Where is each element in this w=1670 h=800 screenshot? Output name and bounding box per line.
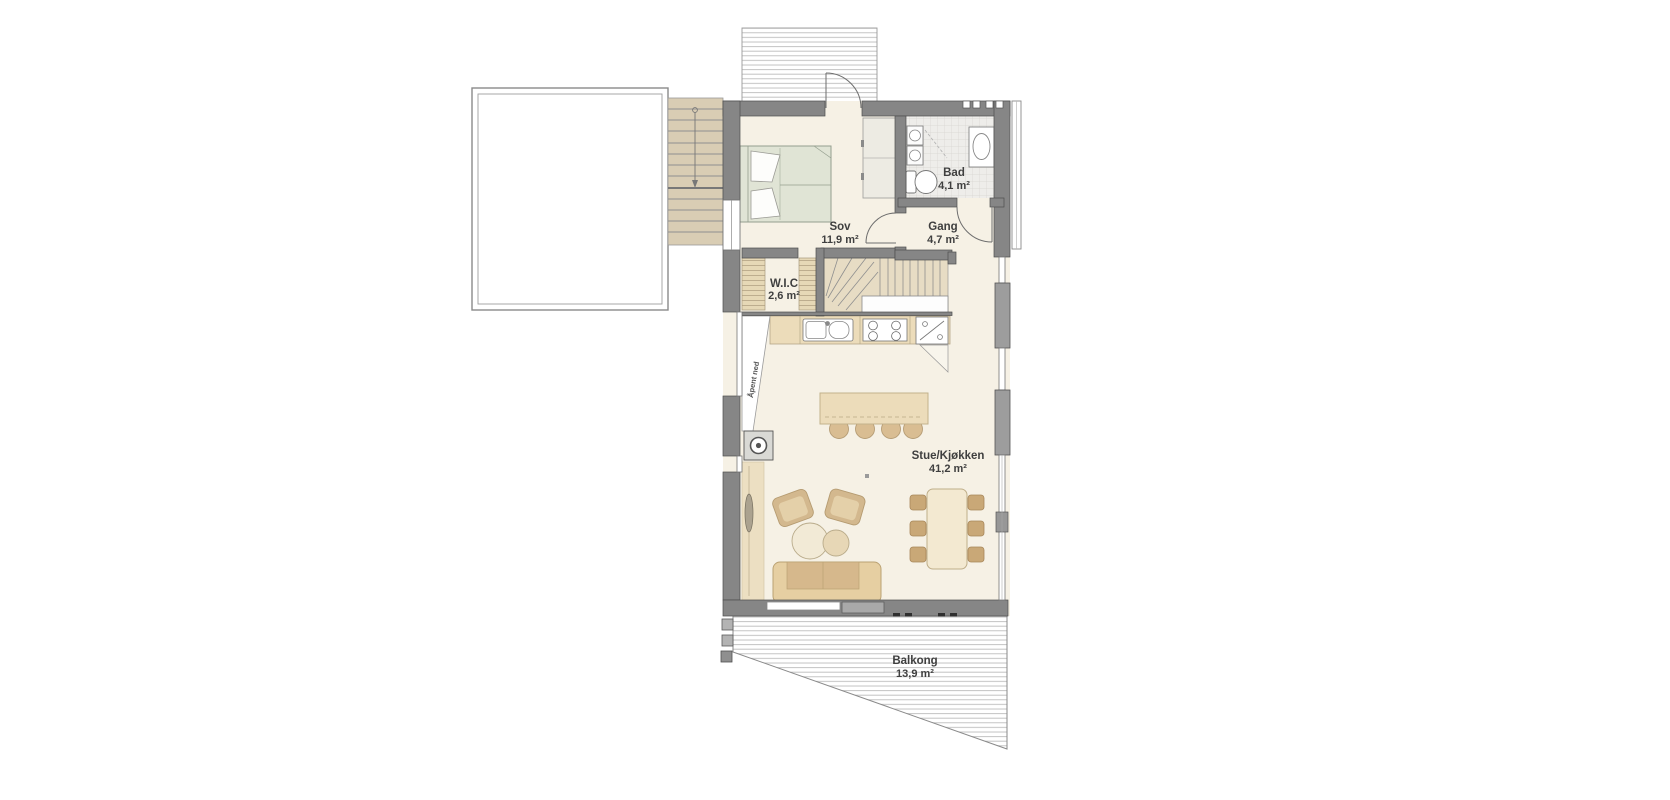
label-wic-area: 2,6 m² bbox=[768, 290, 800, 302]
label-bad-area: 4,1 m² bbox=[938, 180, 970, 192]
fireplace bbox=[744, 431, 773, 460]
side-table bbox=[823, 530, 849, 556]
floor-outlet bbox=[865, 474, 869, 478]
balcony-post bbox=[722, 619, 733, 630]
label-wic-name: W.I.C bbox=[770, 278, 798, 290]
label-stue-area: 41,2 m² bbox=[929, 463, 967, 475]
bedroom-closet bbox=[861, 118, 898, 198]
balcony bbox=[721, 616, 1007, 749]
door-handle bbox=[745, 494, 753, 532]
dining-table bbox=[927, 489, 967, 569]
label-stue-name: Stue/Kjøkken bbox=[912, 450, 985, 462]
kitchen-island bbox=[820, 393, 928, 439]
window-right bbox=[995, 390, 1010, 455]
bathroom-sink bbox=[969, 127, 994, 167]
annex-outline bbox=[472, 88, 668, 310]
label-gang-name: Gang bbox=[928, 221, 957, 233]
balcony-post bbox=[722, 635, 733, 646]
window-right bbox=[995, 283, 1010, 348]
kitchen-sink bbox=[803, 319, 853, 341]
wall-bench bbox=[742, 462, 764, 600]
coffee-table bbox=[792, 523, 828, 559]
label-bad-name: Bad bbox=[943, 167, 965, 179]
floorplan-drawing: Åpent ned bbox=[0, 0, 1670, 800]
label-sov-area: 11,9 m² bbox=[821, 234, 859, 246]
label-sov-name: Sov bbox=[829, 221, 851, 233]
stair-landing bbox=[862, 296, 948, 313]
label-balkong-name: Balkong bbox=[892, 655, 937, 667]
exterior-stairs bbox=[668, 98, 723, 245]
balcony-post bbox=[721, 651, 732, 662]
stove bbox=[863, 319, 907, 341]
interior-stairs bbox=[824, 258, 948, 313]
dining-set bbox=[910, 489, 984, 569]
double-bed bbox=[740, 146, 831, 222]
entrance-deck bbox=[742, 28, 877, 108]
floorplan-canvas: Åpent ned bbox=[0, 0, 1670, 800]
label-balkong-area: 13,9 m² bbox=[896, 668, 934, 680]
exterior-railing bbox=[1012, 101, 1021, 249]
label-gang-area: 4,7 m² bbox=[927, 234, 959, 246]
toilet bbox=[906, 171, 937, 194]
sofa bbox=[773, 562, 881, 603]
